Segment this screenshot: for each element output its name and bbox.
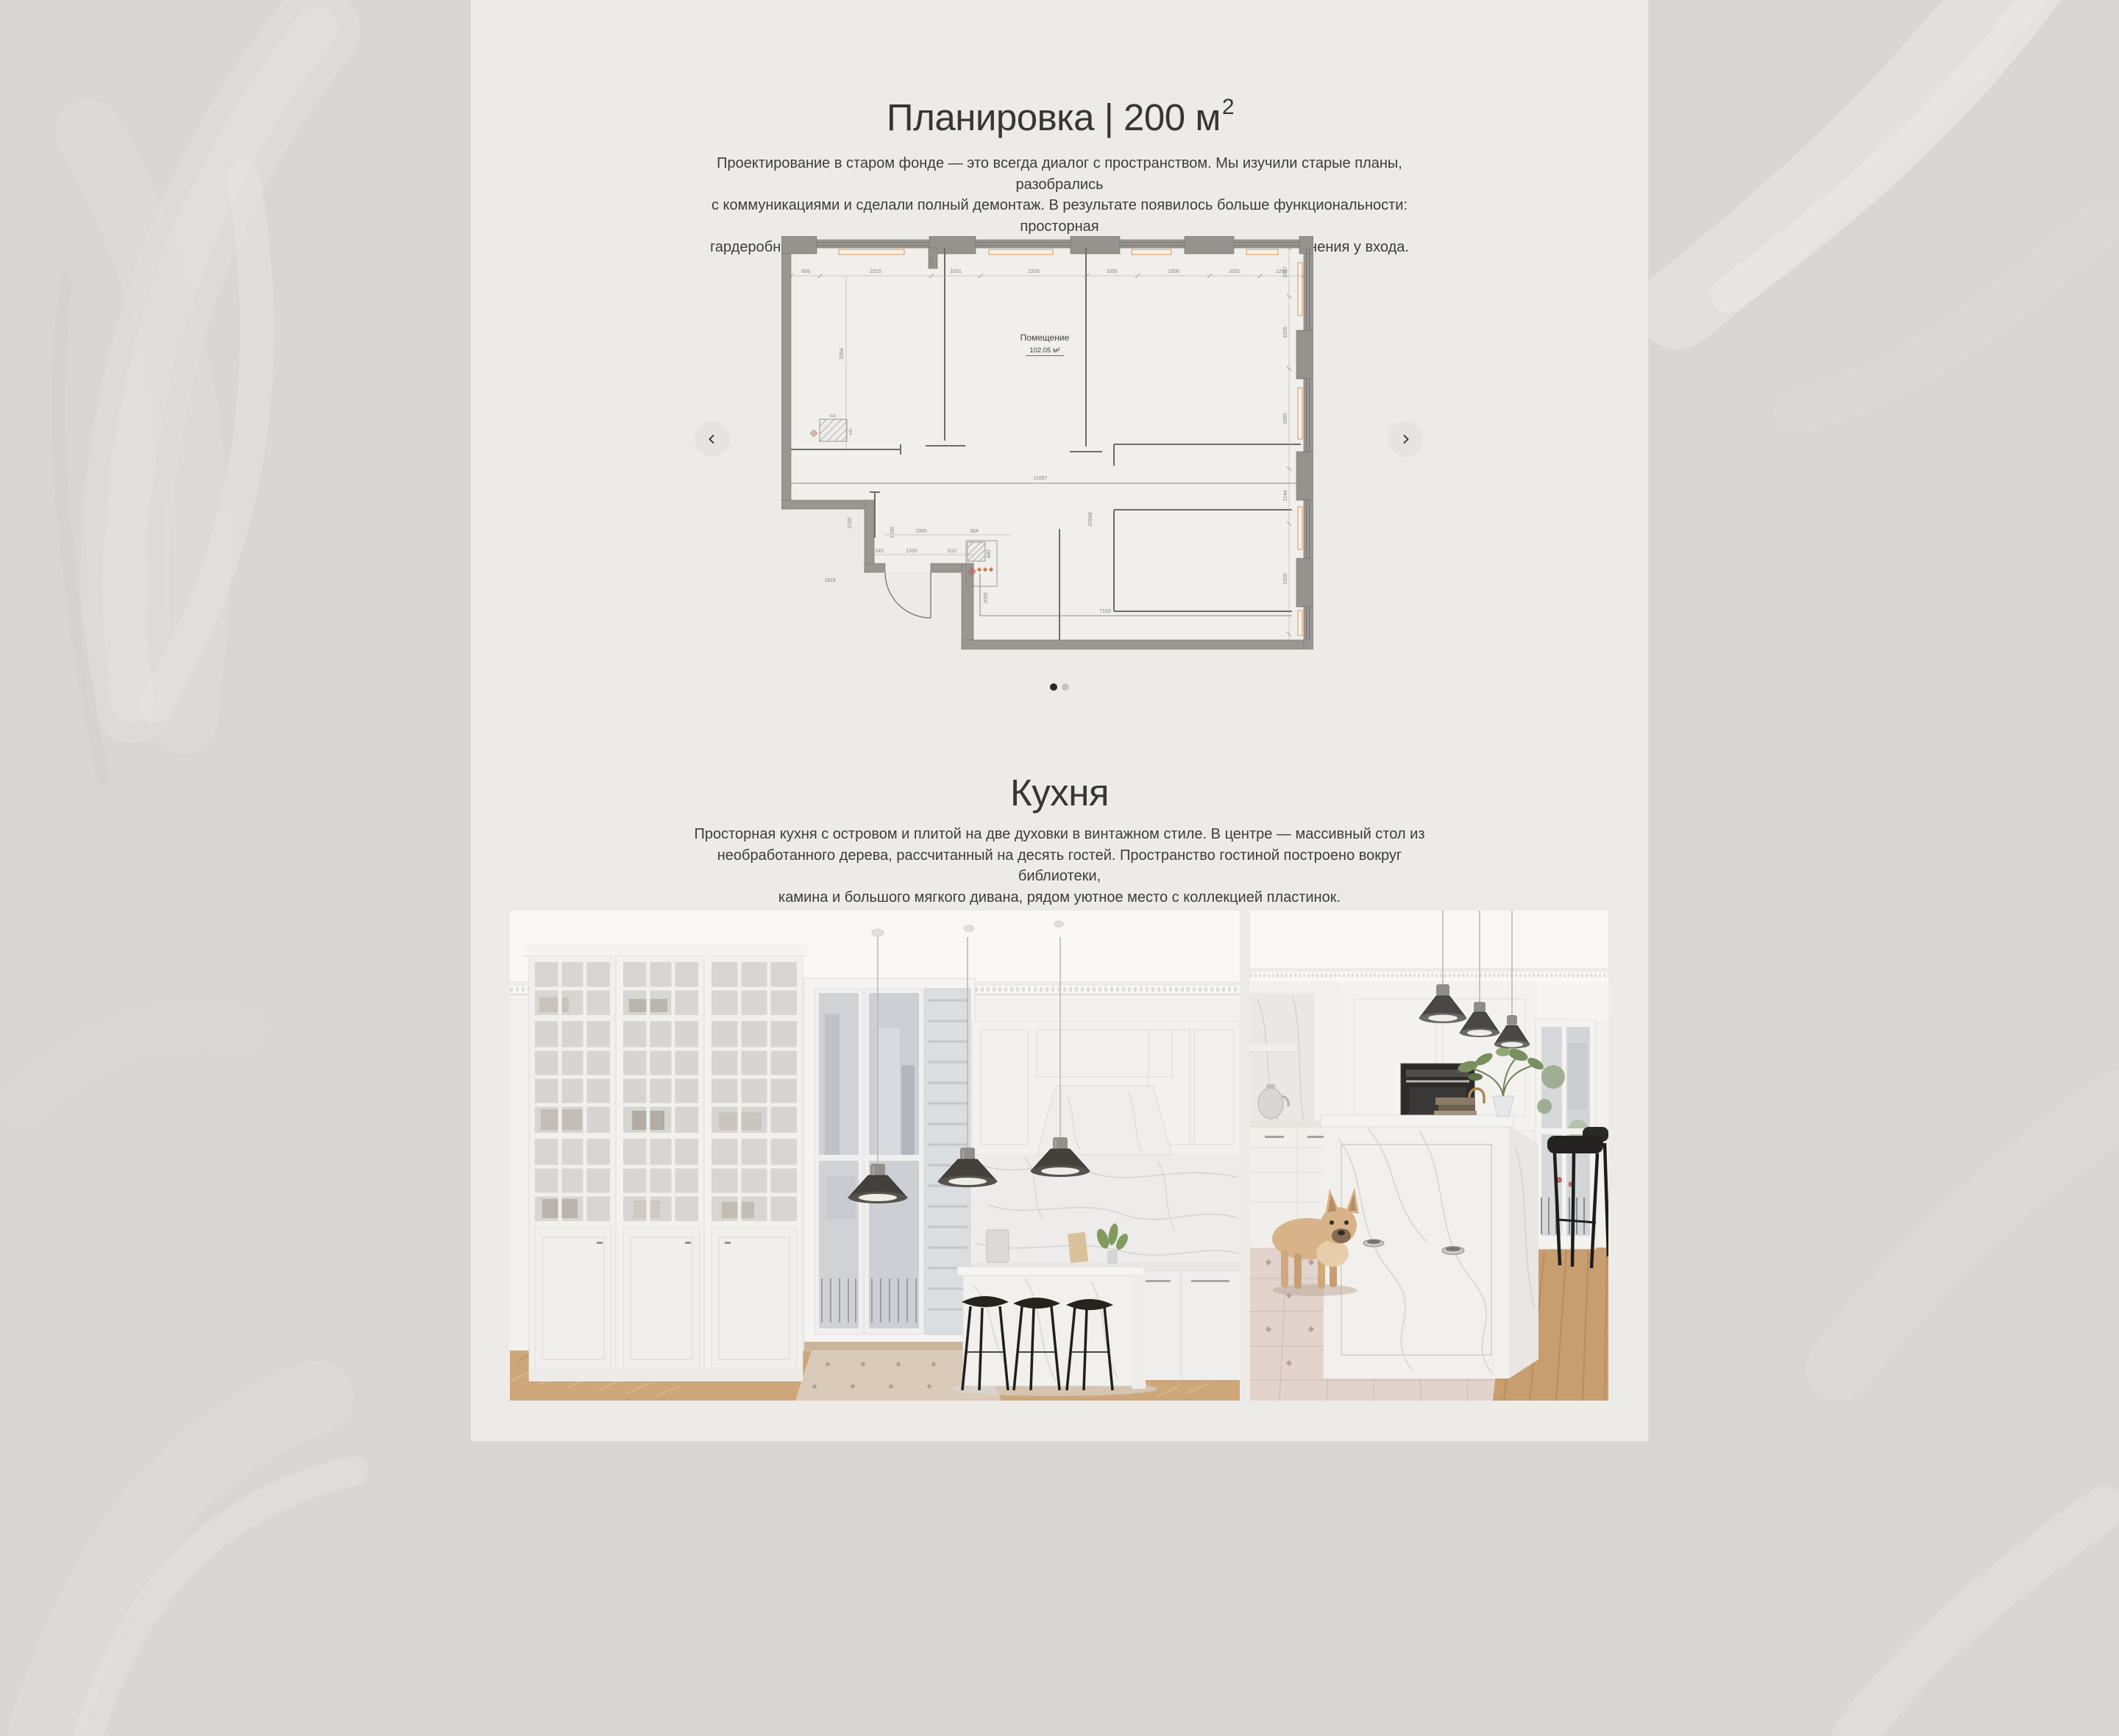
dim-label: 615 [829, 414, 836, 419]
dim-label: 1055 [1106, 269, 1118, 274]
floor-plan-drawing: 608 2315 1031 2200 1055 1500 1051 1298 1… [781, 236, 1313, 650]
dim-label: 442 [849, 428, 853, 435]
background-leaf-decor-left [0, 0, 471, 1736]
dim-label: 608 [801, 269, 810, 274]
background-leaf-decor-right [1648, 0, 2119, 1736]
kitchen-photos-row [510, 911, 1608, 1401]
kitchen-photo-2 [1250, 911, 1608, 1401]
chevron-right-icon [1399, 433, 1412, 446]
dim-label: 2200 [1028, 269, 1040, 274]
dim-label: 2300 [1283, 573, 1288, 585]
dim-label: 2955 [915, 529, 927, 534]
page: Планировка | 200 м2 Проектирование в ста… [0, 0, 2119, 1736]
room-label: Помещение [1021, 332, 1070, 343]
plan-title-text: Планировка | 200 м [887, 96, 1221, 138]
dim-label: 610 [948, 549, 956, 554]
dim-label: 1144 [1283, 490, 1288, 501]
kitchen-description: Просторная кухня с островом и плитой на … [692, 824, 1427, 908]
floor-plan-slide: 608 2315 1031 2200 1055 1500 1051 1298 1… [781, 236, 1313, 650]
dim-label: 3354 [840, 348, 845, 360]
dim-label: 2055 [984, 592, 989, 604]
chevron-left-icon [706, 433, 719, 446]
carousel-dots [471, 683, 1648, 691]
plan-section-title: Планировка | 200 м2 [471, 96, 1648, 139]
kitchen-section-title: Кухня [471, 771, 1648, 814]
dim-label: 245 [875, 549, 884, 554]
plan-title-sup: 2 [1222, 95, 1234, 119]
dim-label: 1700 [890, 527, 895, 538]
dim-label: 1051 [1229, 269, 1240, 274]
dim-label: 1031 [950, 269, 962, 274]
dim-label: 1017 [1283, 266, 1288, 278]
content-panel: Планировка | 200 м2 Проектирование в ста… [471, 0, 1648, 1441]
dim-label: 2190 [848, 517, 853, 529]
dim-label: 480 [987, 549, 992, 558]
dim-label: 2315 [870, 269, 881, 274]
carousel-prev-button[interactable] [695, 421, 730, 457]
dim-label: 364 [970, 529, 979, 534]
dim-label: 1200 [906, 549, 917, 554]
dim-label: 1505 [1283, 327, 1288, 338]
dim-label: 1500 [1168, 269, 1179, 274]
carousel-dot[interactable] [1050, 683, 1057, 691]
dim-label: 1819 [824, 578, 836, 583]
carousel-dot[interactable] [1062, 683, 1069, 691]
dim-label: 2085 [1283, 413, 1288, 424]
room-area: 102.05 м² [1029, 346, 1059, 355]
dim-label: 10548 [1088, 512, 1093, 527]
kitchen-photo-1 [510, 911, 1240, 1401]
dim-label: 7193 [1099, 609, 1111, 614]
dim-label: 981 [929, 257, 934, 266]
carousel-next-button[interactable] [1388, 421, 1423, 457]
dim-label: 11067 [1034, 476, 1048, 481]
